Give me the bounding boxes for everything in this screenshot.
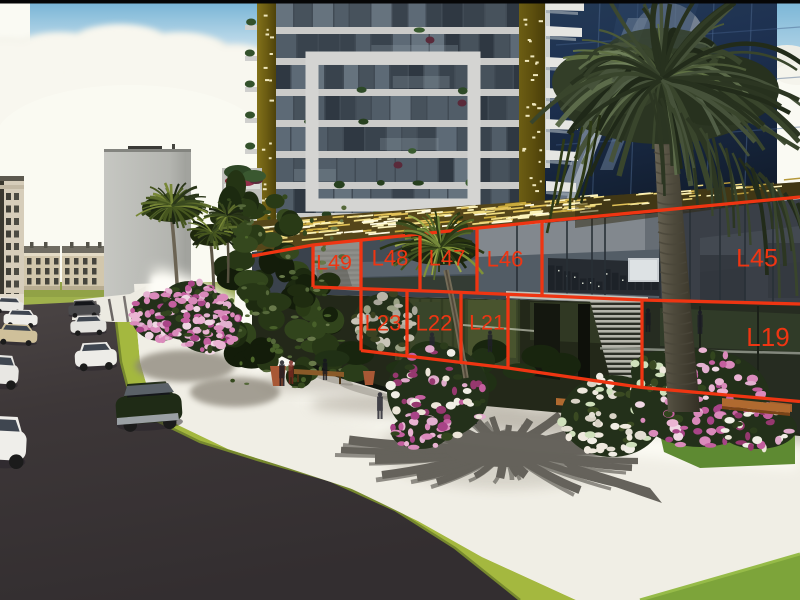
svg-text:L47: L47	[429, 246, 466, 271]
svg-text:L48: L48	[372, 246, 409, 271]
svg-text:L49: L49	[316, 251, 352, 275]
svg-text:L45: L45	[736, 245, 778, 273]
svg-text:L46: L46	[487, 247, 524, 272]
svg-text:L23: L23	[365, 311, 402, 336]
svg-text:L22: L22	[416, 311, 453, 336]
svg-text:L19: L19	[746, 322, 789, 352]
svg-text:L21: L21	[469, 311, 505, 335]
